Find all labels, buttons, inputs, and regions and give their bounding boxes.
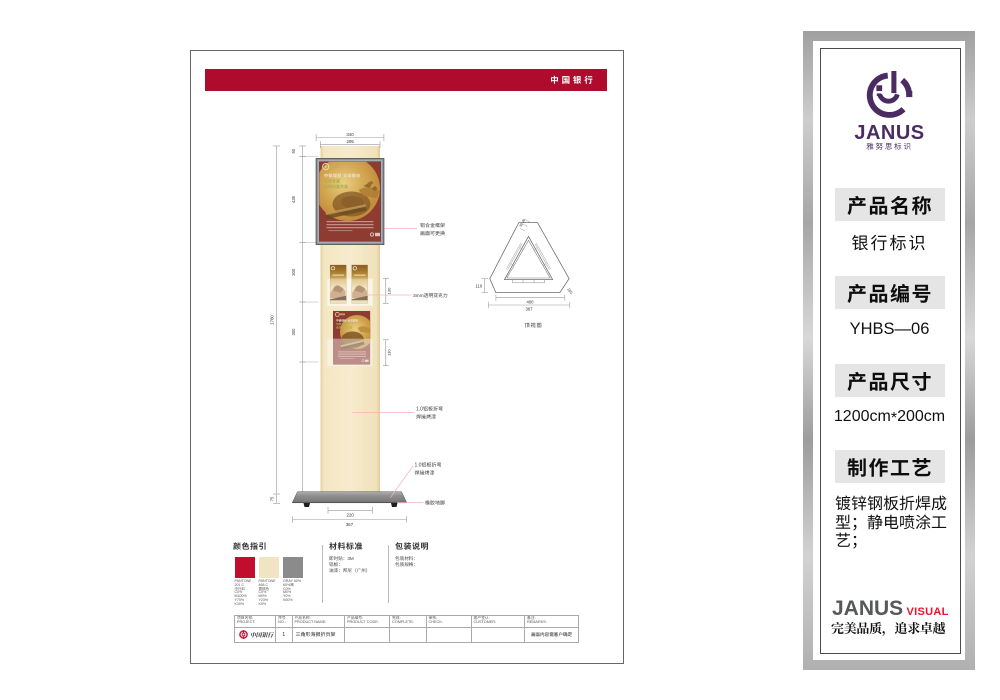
svg-text:435: 435: [291, 195, 297, 203]
svg-text:1.0铝板折弯: 1.0铝板折弯: [416, 406, 443, 413]
svg-text:橡胶地脚: 橡胶地脚: [425, 500, 445, 507]
svg-text:130: 130: [386, 287, 392, 294]
svg-text:220: 220: [346, 513, 354, 519]
svg-text:295: 295: [346, 139, 354, 145]
svg-text:75: 75: [269, 496, 275, 501]
svg-text:顶视图: 顶视图: [524, 322, 542, 329]
svg-text:300: 300: [291, 328, 297, 336]
svg-text:150: 150: [565, 287, 573, 295]
svg-text:340: 340: [346, 132, 354, 138]
svg-text:中国银行: 中国银行: [250, 630, 274, 639]
svg-text:画面可更换: 画面可更换: [420, 230, 445, 237]
svg-text:全球创富共赢: 全球创富共赢: [324, 184, 348, 190]
svg-text:1.0铝板折弯: 1.0铝板折弯: [414, 462, 441, 469]
svg-text:全球创富共赢: 全球创富共赢: [336, 326, 352, 330]
svg-text:50: 50: [291, 148, 297, 153]
svg-text:焊接烤漆: 焊接烤漆: [414, 470, 434, 477]
svg-text:367: 367: [525, 307, 533, 313]
svg-text:3mm透明亚克力: 3mm透明亚克力: [413, 292, 448, 299]
svg-text:367: 367: [345, 522, 353, 528]
svg-text:1760: 1760: [269, 315, 275, 325]
svg-text:130: 130: [386, 349, 392, 356]
svg-text:400: 400: [526, 299, 534, 305]
svg-text:铝合金框架: 铝合金框架: [420, 222, 445, 229]
svg-text:110: 110: [475, 284, 482, 290]
svg-text:焊接烤漆: 焊接烤漆: [416, 414, 436, 421]
svg-text:300: 300: [291, 268, 297, 276]
